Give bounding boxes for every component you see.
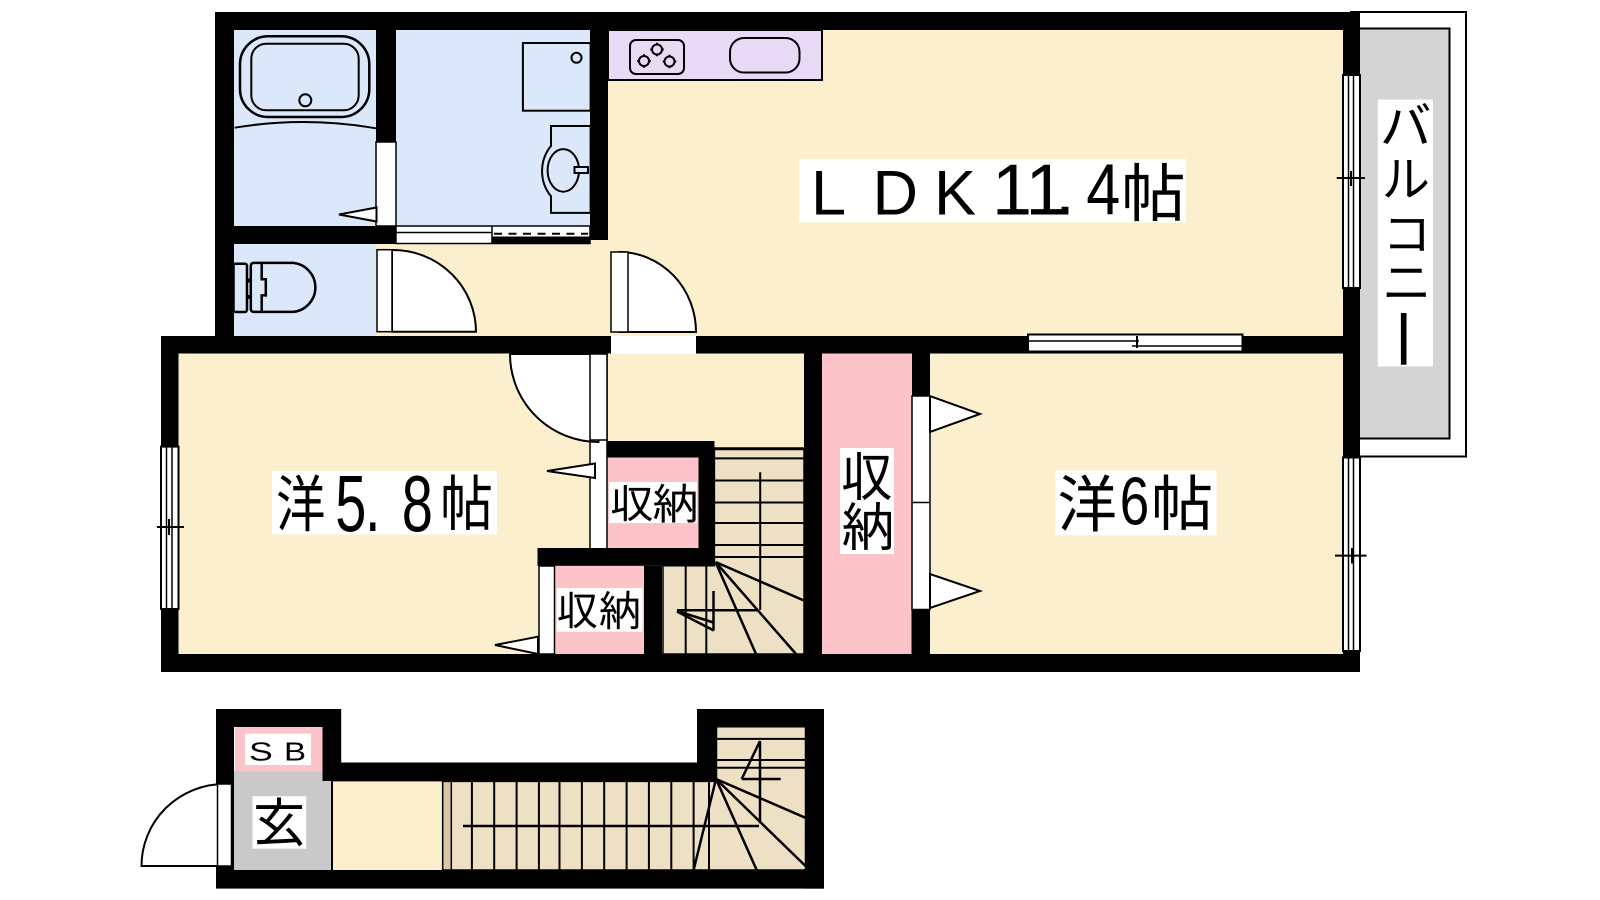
svg-text:6: 6 [1120, 463, 1150, 539]
svg-text:8: 8 [402, 458, 433, 548]
svg-text:4: 4 [1086, 151, 1120, 231]
svg-text:5: 5 [335, 458, 366, 548]
svg-text:.: . [365, 458, 381, 548]
svg-text:S: S [249, 737, 273, 766]
svg-text:D: D [873, 159, 919, 229]
svg-text:K: K [934, 159, 976, 229]
svg-text:B: B [284, 738, 306, 766]
svg-text:.: . [1055, 151, 1075, 231]
svg-text:L: L [811, 159, 846, 229]
